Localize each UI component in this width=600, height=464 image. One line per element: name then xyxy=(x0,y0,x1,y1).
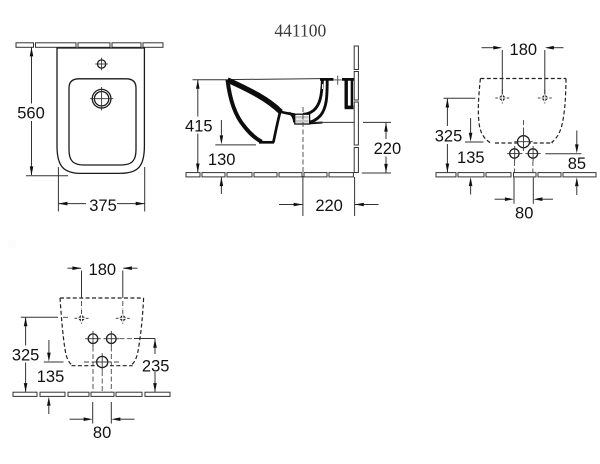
svg-text:325: 325 xyxy=(12,347,40,365)
svg-text:560: 560 xyxy=(17,105,45,123)
svg-text:220: 220 xyxy=(315,197,343,215)
svg-text:415: 415 xyxy=(185,117,213,135)
svg-text:180: 180 xyxy=(510,41,538,59)
svg-text:441100: 441100 xyxy=(274,21,326,41)
svg-text:235: 235 xyxy=(142,357,170,375)
svg-text:135: 135 xyxy=(457,149,485,167)
svg-text:375: 375 xyxy=(89,197,117,215)
svg-text:135: 135 xyxy=(37,368,65,386)
svg-text:80: 80 xyxy=(93,424,111,442)
svg-text:85: 85 xyxy=(568,155,586,173)
svg-text:325: 325 xyxy=(435,128,463,146)
svg-text:130: 130 xyxy=(208,151,236,169)
svg-text:220: 220 xyxy=(374,140,402,158)
svg-text:80: 80 xyxy=(515,204,533,222)
svg-text:180: 180 xyxy=(89,261,117,279)
